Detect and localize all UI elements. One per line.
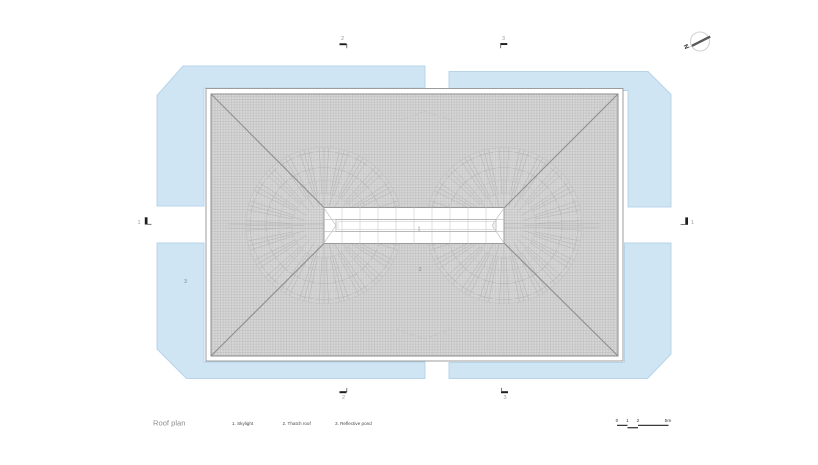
- svg-text:3. Reflective pond: 3. Reflective pond: [335, 421, 372, 426]
- svg-text:2: 2: [341, 36, 344, 42]
- svg-text:1: 1: [137, 220, 140, 226]
- svg-text:3: 3: [502, 36, 505, 42]
- svg-text:2: 2: [342, 395, 345, 401]
- svg-text:0: 0: [616, 418, 619, 424]
- svg-text:2. Thatch roof: 2. Thatch roof: [283, 421, 312, 426]
- svg-text:2: 2: [419, 267, 422, 273]
- svg-text:1: 1: [418, 227, 421, 233]
- svg-text:2: 2: [637, 418, 640, 424]
- svg-text:1. Skylight: 1. Skylight: [232, 421, 254, 426]
- svg-text:Roof plan: Roof plan: [153, 419, 186, 428]
- svg-text:3: 3: [503, 395, 506, 401]
- svg-text:1: 1: [626, 418, 629, 424]
- svg-text:5m: 5m: [665, 418, 672, 424]
- svg-text:1: 1: [691, 220, 694, 226]
- svg-text:3: 3: [184, 279, 187, 285]
